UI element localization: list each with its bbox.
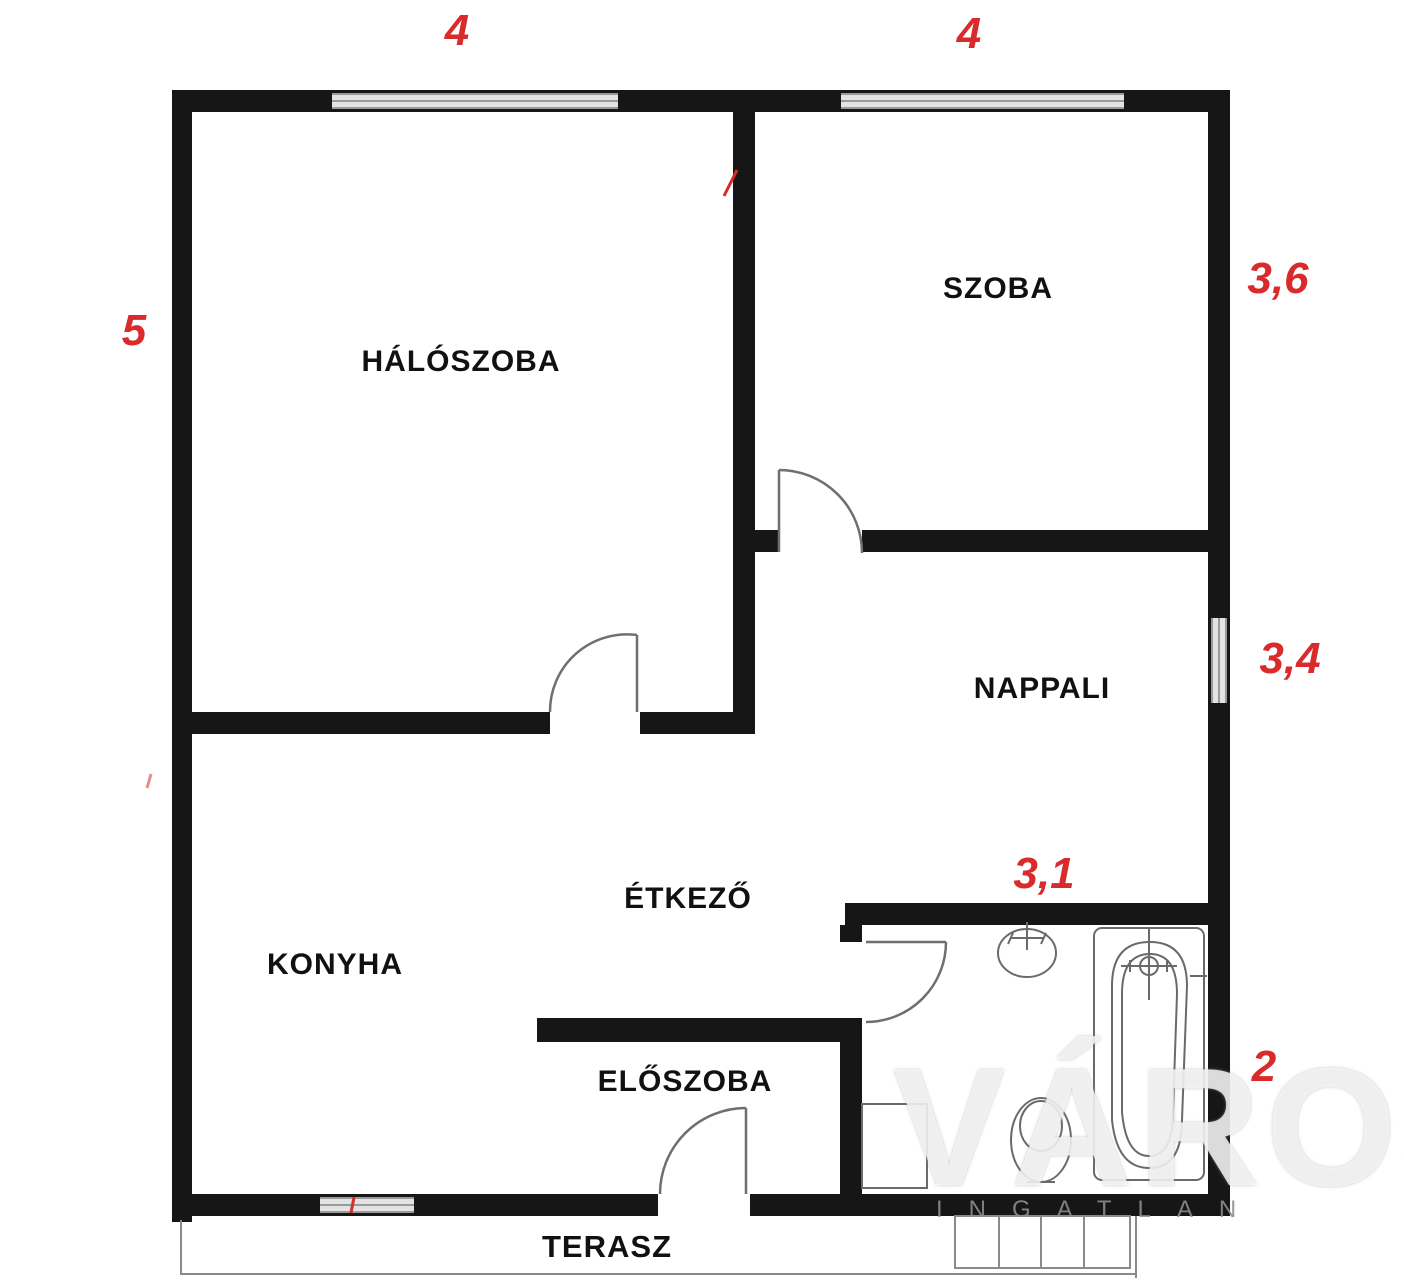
red-tick-divider (724, 170, 737, 196)
sink-tap (1008, 922, 1046, 950)
dim-right-top: 3,6 (1247, 254, 1308, 304)
dim-top-left: 4 (445, 6, 469, 56)
label-terasz: TERASZ (542, 1229, 672, 1265)
red-tick-window (351, 1197, 354, 1213)
label-nappali: NAPPALI (974, 672, 1110, 706)
label-konyha: KONYHA (267, 948, 403, 982)
toilet-seat (1020, 1101, 1062, 1151)
toilet-bowl (1011, 1098, 1071, 1182)
label-szoba: SZOBA (943, 272, 1053, 306)
red-tick-leftwall (147, 774, 151, 788)
bathtub-tap-lines (1121, 929, 1207, 1000)
label-etkezo: ÉTKEZŐ (624, 882, 752, 916)
haloszoba-door-arc (550, 634, 637, 712)
dim-right-mid: 3,4 (1259, 634, 1320, 684)
dim-bath-top: 3,1 (1013, 849, 1074, 899)
terrace-stairs (955, 1216, 1130, 1268)
label-eloszoba: ELŐSZOBA (598, 1065, 773, 1099)
entrance-door-arc (660, 1108, 746, 1194)
szoba-door-arc (779, 470, 862, 553)
bathroom-door-arc (866, 942, 946, 1022)
dim-right-bottom: 2 (1252, 1042, 1276, 1092)
dim-top-right: 4 (957, 9, 981, 59)
washing-machine (862, 1104, 927, 1188)
floor-plan: HÁLÓSZOBA SZOBA NAPPALI ÉTKEZŐ KONYHA EL… (0, 0, 1404, 1280)
dim-left: 5 (122, 306, 146, 356)
label-haloszoba: HÁLÓSZOBA (362, 345, 561, 379)
